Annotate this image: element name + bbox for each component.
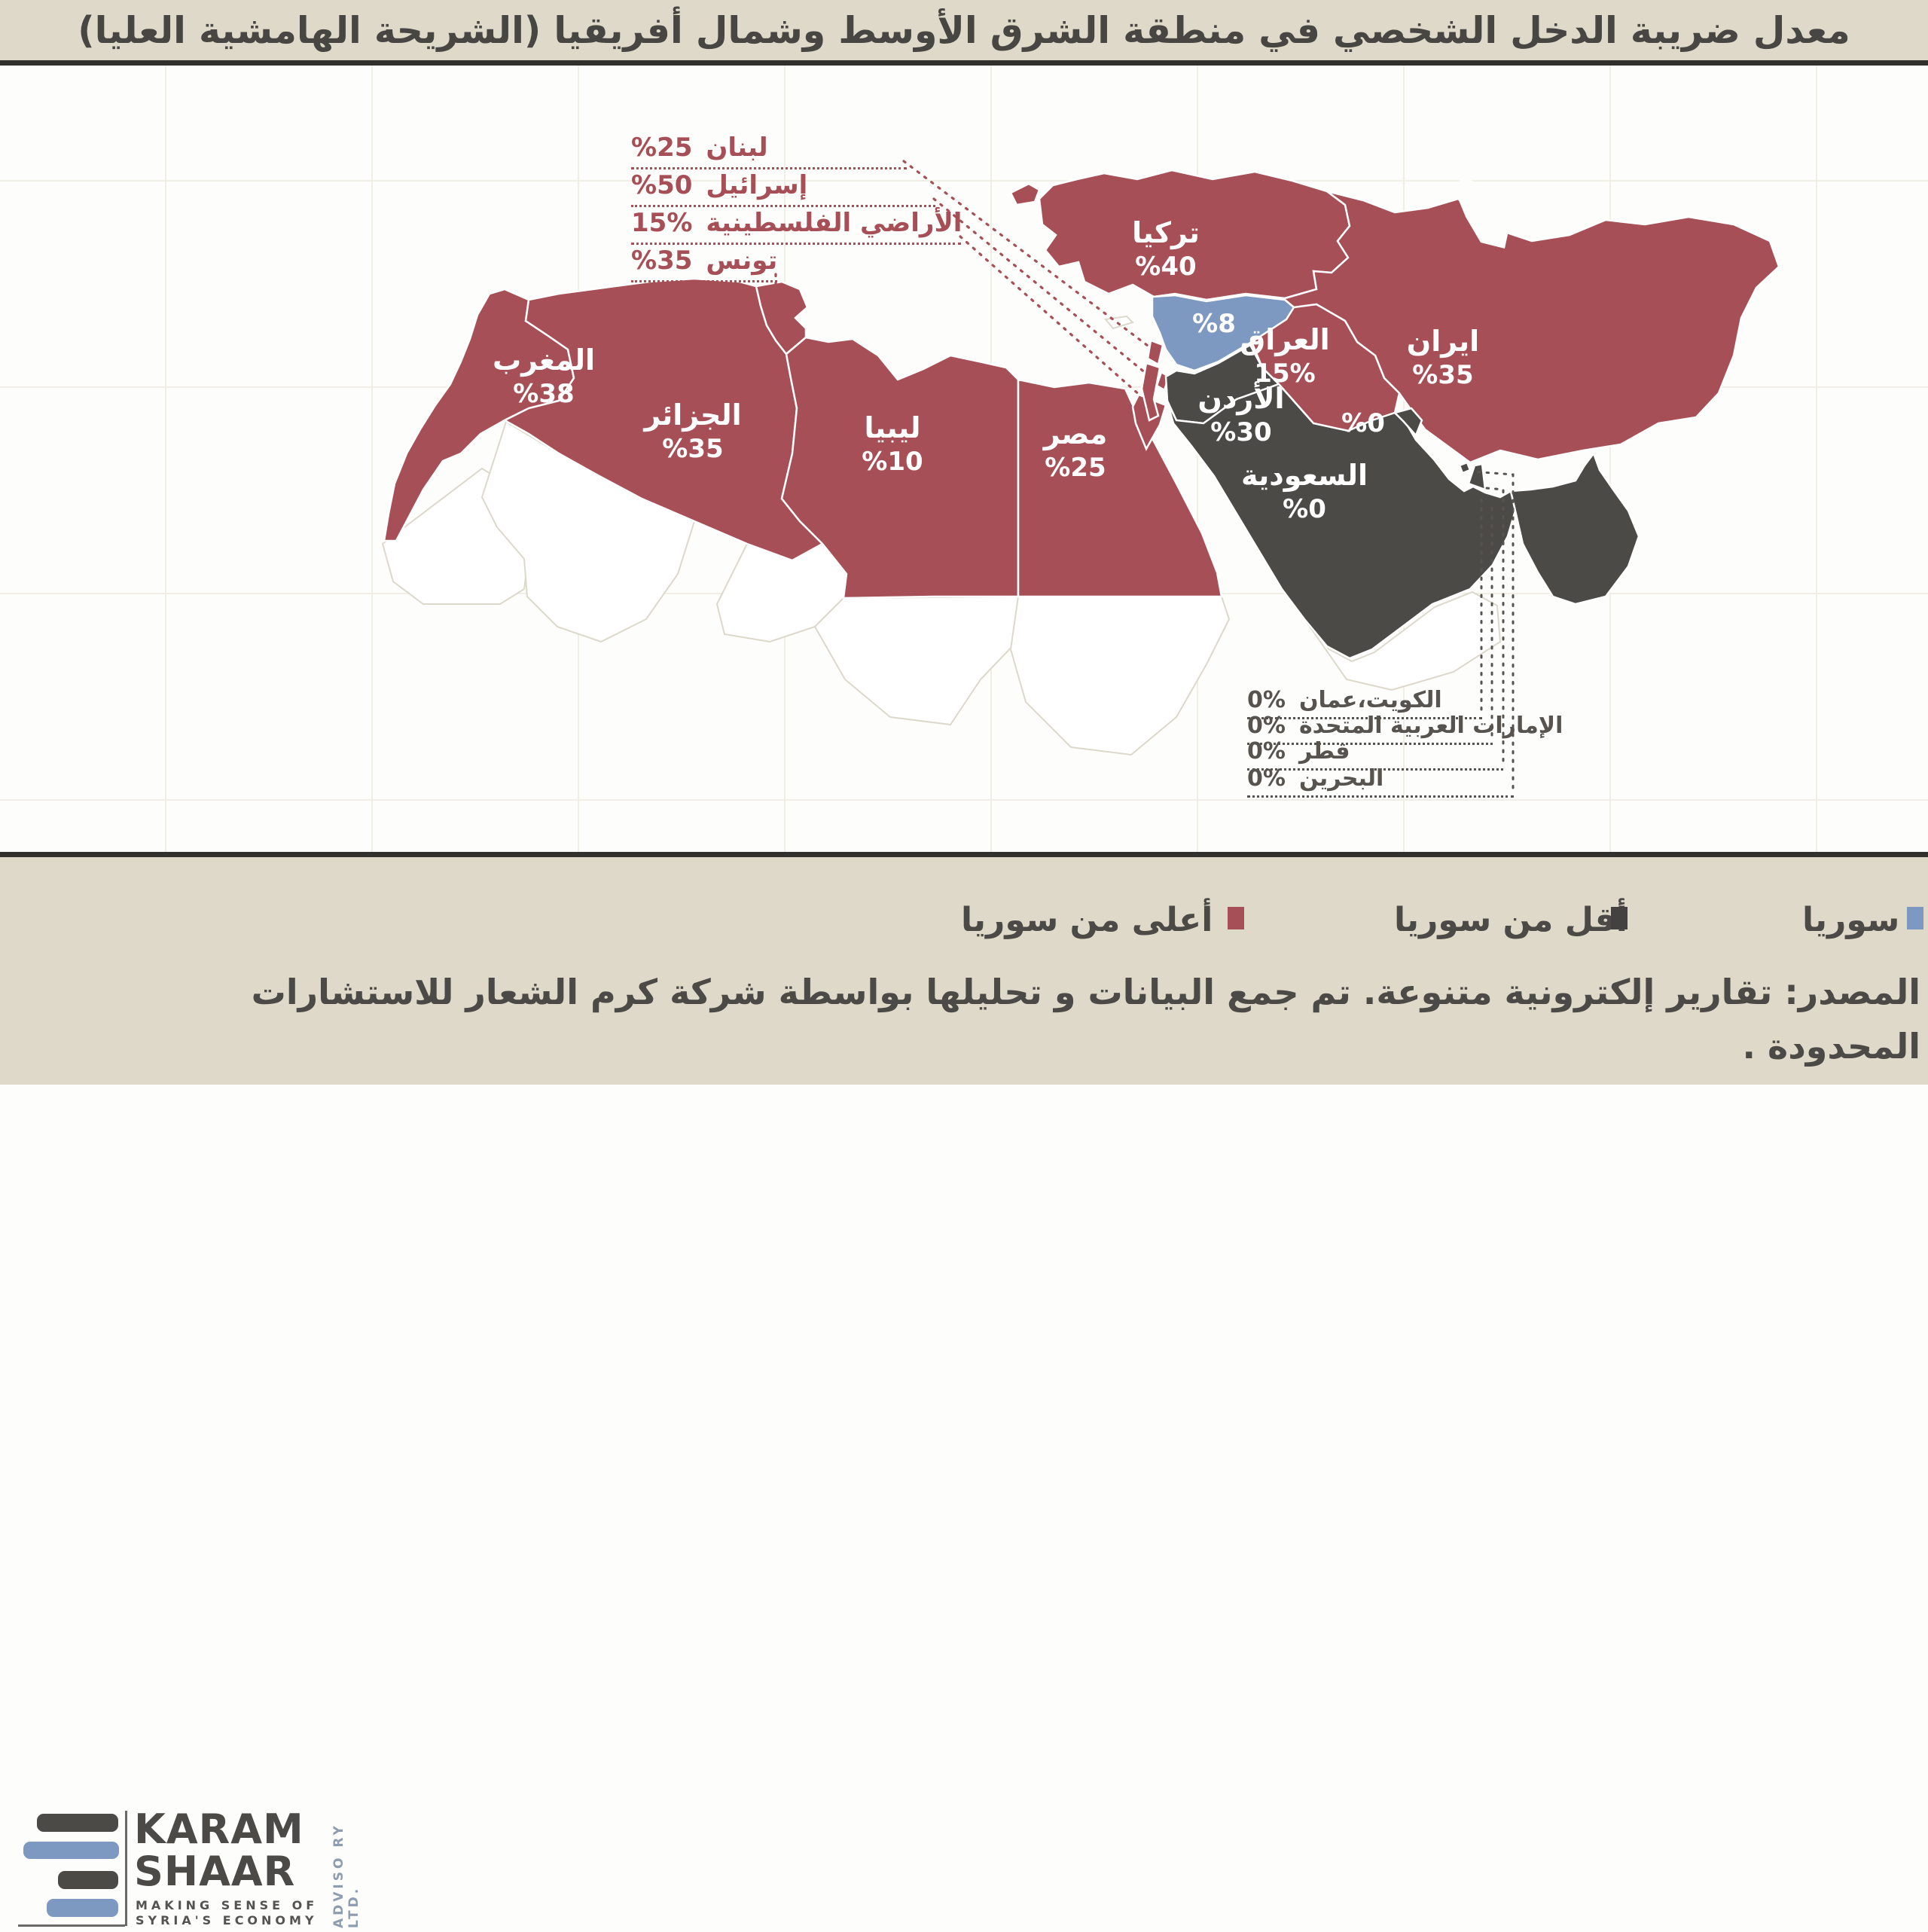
map-label-country: مصر <box>1044 417 1108 451</box>
logo-tagline-2: SYRIA'S ECONOMY <box>136 1913 318 1927</box>
map-label: %8 <box>1192 307 1236 340</box>
map-label-country: الأردن <box>1197 381 1284 416</box>
logo-word-shaar: SHAAR <box>134 1851 295 1892</box>
callout-row: %50إسرائيل <box>631 170 935 207</box>
callout-country: البحرين <box>1299 765 1383 792</box>
map-label: ليبيا%10 <box>862 411 923 478</box>
map-label-rate: %10 <box>862 445 923 478</box>
callout-row: %25لبنان <box>631 133 907 169</box>
map-canvas: تركيا%40%8العراق15%ايران%35الأردن%30السع… <box>0 66 1928 852</box>
country-lebanon <box>1148 340 1163 365</box>
map-label-rate: %0 <box>1241 493 1368 526</box>
map-label-country: الجزائر <box>644 398 741 432</box>
callout-row: 15%الأراضي الفلسطينية <box>631 208 961 245</box>
map-label: تركيا%40 <box>1132 215 1200 283</box>
callout-country: قطر <box>1299 738 1350 765</box>
legend-swatch-syria <box>1907 907 1923 929</box>
map-label-rate: %35 <box>1407 359 1479 392</box>
map-label: ايران%35 <box>1407 324 1479 392</box>
map-label: العراق15% <box>1240 322 1329 390</box>
page-title: معدل ضريبة الدخل الشخصي في منطقة الشرق ا… <box>78 9 1850 52</box>
callout-country: إسرائيل <box>706 170 807 200</box>
logo-bar-3 <box>58 1871 118 1889</box>
map-label: الجزائر%35 <box>644 398 741 465</box>
legend-swatch-higher <box>1228 907 1244 929</box>
map-label-rate: %0 <box>1341 407 1385 440</box>
legend-swatch-lower <box>1611 907 1628 929</box>
country-chad <box>815 597 1018 725</box>
legend-label-higher: أعلى من سوريا <box>961 901 1213 939</box>
callout-country: لبنان <box>706 133 767 163</box>
title-bar: معدل ضريبة الدخل الشخصي في منطقة الشرق ا… <box>0 0 1928 66</box>
source-line-2: المحدودة . <box>1743 1026 1920 1067</box>
country-turkey-thrace <box>1011 184 1039 205</box>
logo-bar-4 <box>47 1899 118 1917</box>
logo-divider-horizontal <box>18 1924 125 1927</box>
map-label: مصر%25 <box>1044 417 1108 484</box>
map-label: السعودية%0 <box>1241 458 1368 526</box>
map-label-rate: %35 <box>644 432 741 465</box>
callout-rate: 0% <box>1247 687 1286 713</box>
logo-divider-vertical <box>125 1811 127 1926</box>
karam-shaar-logo: KARAM SHAAR MAKING SENSE OF SYRIA'S ECON… <box>21 1808 375 1932</box>
callout-rate: %25 <box>631 133 692 163</box>
map-label: الأردن%30 <box>1197 381 1284 449</box>
callout-row: 0%البحرين <box>1247 765 1514 798</box>
logo-word-karam: KARAM <box>134 1809 304 1850</box>
map-label-country: المغرب <box>493 343 595 377</box>
callout-country: الكويت،عمان <box>1299 687 1442 713</box>
logo-tagline-1: MAKING SENSE OF <box>136 1898 318 1912</box>
callout-rate: 0% <box>1247 713 1286 739</box>
legend-label-lower: أقل من سوريا <box>1394 901 1628 939</box>
callout-country: الأراضي الفلسطينية <box>706 208 962 238</box>
legend-label-syria: سوريا <box>1802 901 1899 939</box>
map-label-country: ايران <box>1407 324 1479 359</box>
callout-rate: %35 <box>631 246 692 276</box>
callout-country: الإمارات العربية المتحدة <box>1299 713 1563 739</box>
country-qatar <box>1469 464 1485 490</box>
map-label-country: تركيا <box>1132 215 1200 250</box>
callout-rate: 15% <box>631 208 692 238</box>
footer-band: أعلى من سوريا أقل من سوريا سوريا المصدر:… <box>0 852 1928 1085</box>
map-label-country: السعودية <box>1241 458 1368 493</box>
map-label-rate: %8 <box>1192 307 1236 340</box>
source-line-1: المصدر: تقارير إلكترونية متنوعة. تم جمع … <box>252 972 1920 1012</box>
map-label: المغرب%38 <box>493 343 595 411</box>
callout-rate: %50 <box>631 170 692 200</box>
map-label-rate: %25 <box>1044 451 1108 484</box>
country-sudan <box>1011 597 1229 755</box>
country-uae-oman <box>1511 453 1639 604</box>
map-label-rate: %40 <box>1132 250 1200 283</box>
map-label-country: ليبيا <box>862 411 923 445</box>
logo-advisory-text: ADVISO RY LTD. <box>331 1808 361 1928</box>
map-label-rate: %30 <box>1197 416 1284 449</box>
callout-row: %35تونس <box>631 246 777 282</box>
mena-map <box>0 66 1928 852</box>
callout-country: تونس <box>706 246 777 276</box>
country-cyprus <box>1106 316 1133 328</box>
callout-rate: 0% <box>1247 765 1286 792</box>
map-label: %0 <box>1341 407 1385 440</box>
logo-bar-1 <box>37 1814 118 1832</box>
callout-rate: 0% <box>1247 738 1286 765</box>
country-bahrain <box>1460 462 1470 473</box>
map-label-country: العراق <box>1240 322 1329 357</box>
logo-bar-2 <box>23 1842 119 1859</box>
map-label-rate: %38 <box>493 377 595 411</box>
